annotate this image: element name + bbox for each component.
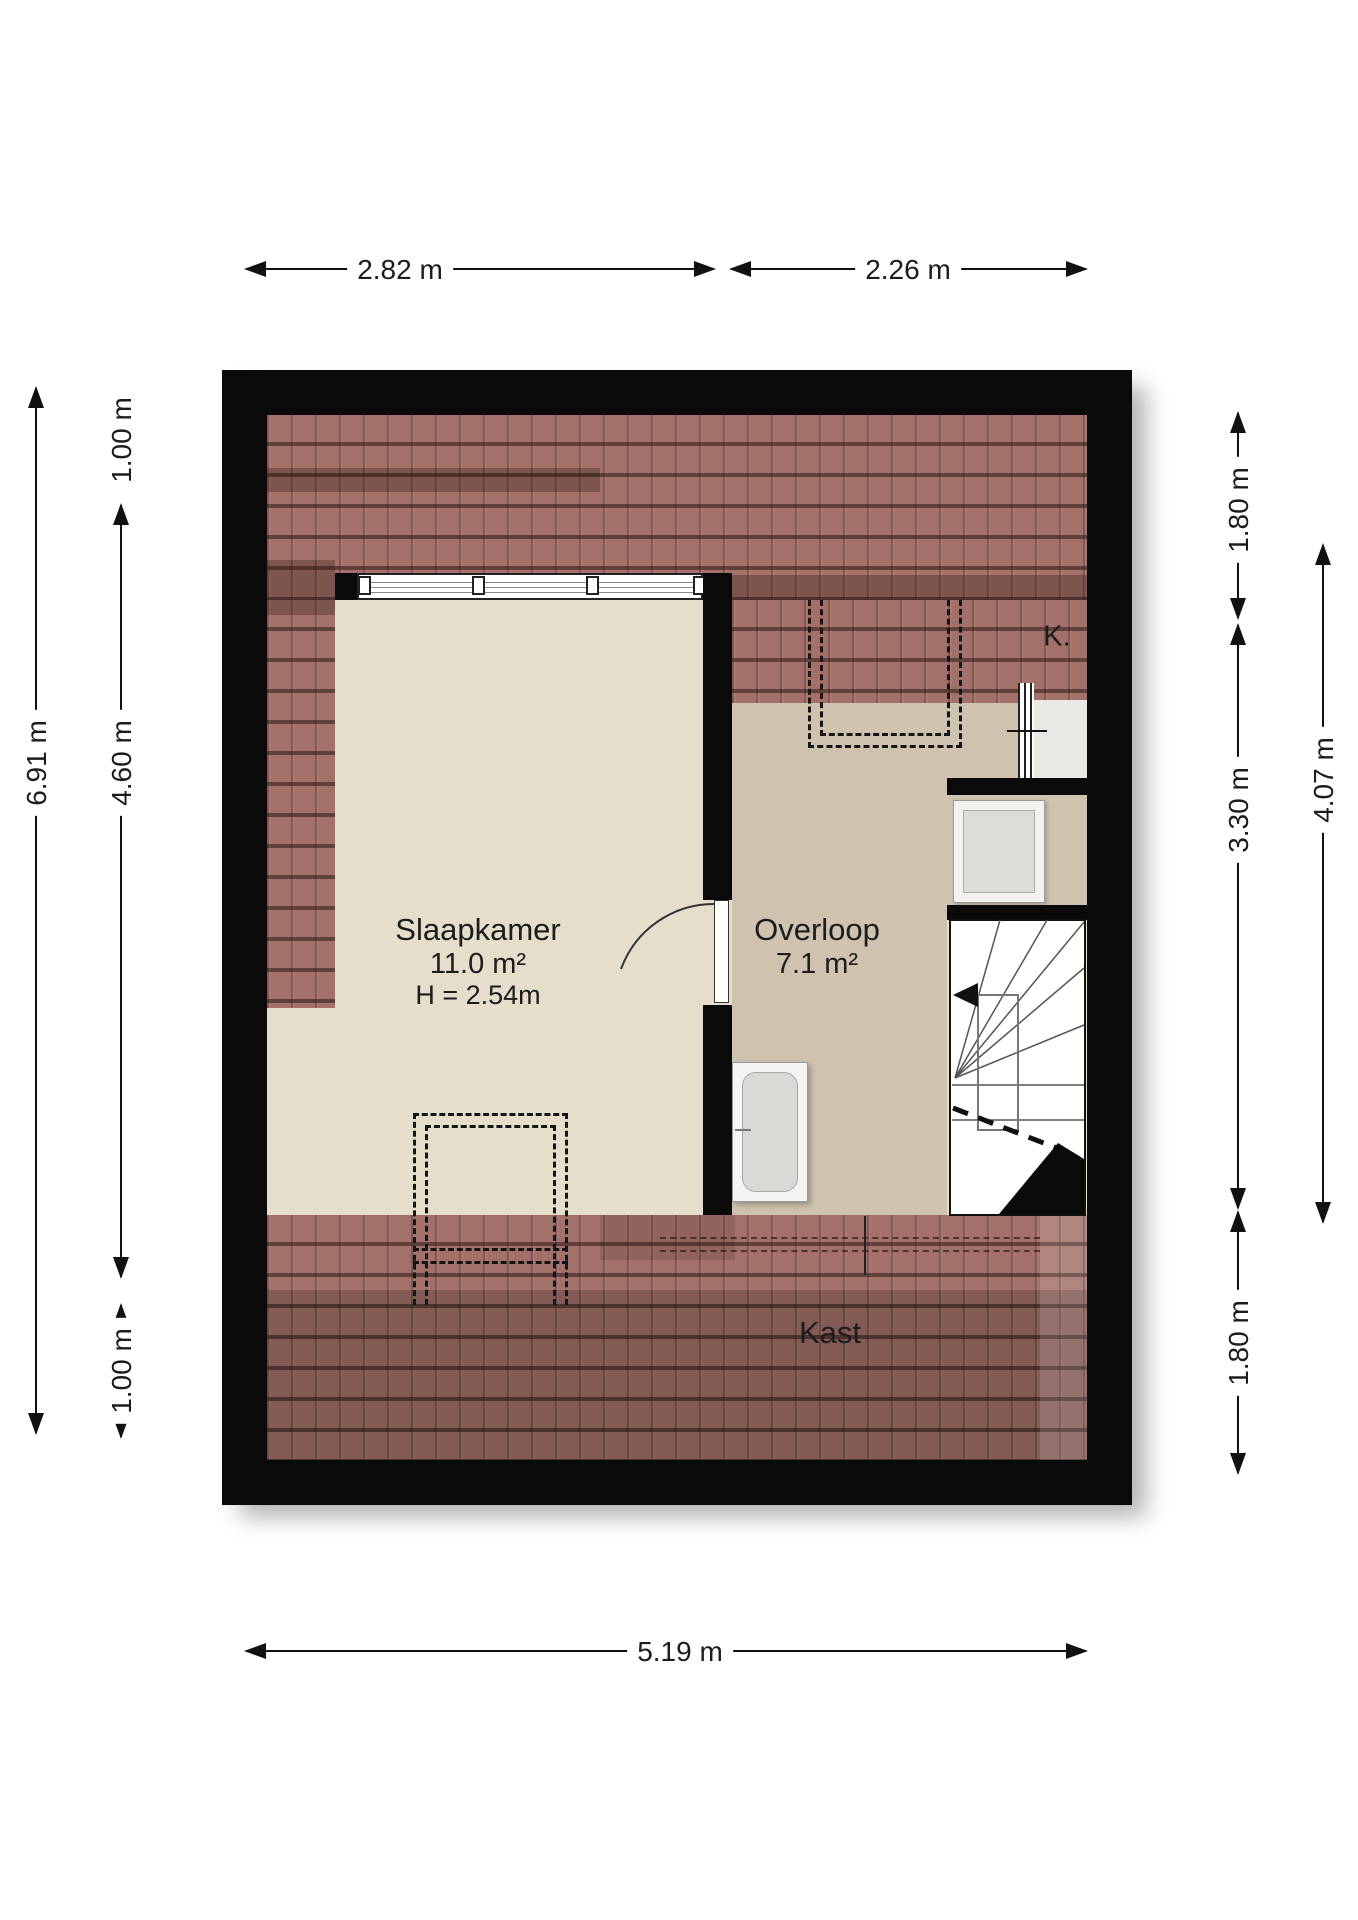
- building-interior: Slaapkamer 11.0 m² H = 2.54m Overloop 7.…: [267, 415, 1087, 1460]
- dim-label: 1.80 m: [1223, 1290, 1255, 1396]
- arrow-icon: [1315, 1202, 1331, 1224]
- floorplan-canvas: Slaapkamer 11.0 m² H = 2.54m Overloop 7.…: [0, 0, 1358, 1920]
- arrow-icon: [1230, 598, 1246, 620]
- arrow-icon: [1315, 543, 1331, 565]
- dim-label: 1.00 m: [106, 1318, 138, 1424]
- room-height: H = 2.54m: [395, 980, 560, 1010]
- dim-top-1: 2.82 m: [246, 268, 714, 270]
- dim-label: 3.30 m: [1223, 757, 1255, 863]
- dim-label: 5.19 m: [627, 1636, 733, 1668]
- arrow-icon: [1230, 1453, 1246, 1475]
- arrow-icon: [1066, 261, 1088, 277]
- dim-right-c: 1.80 m: [1237, 1212, 1239, 1473]
- kast-label: Kast: [799, 1315, 861, 1351]
- dim-left-a: 1.00 m: [120, 390, 122, 487]
- dim-label: 1.00 m: [106, 387, 138, 493]
- arrow-icon: [113, 1257, 129, 1279]
- dim-bottom: 5.19 m: [246, 1650, 1086, 1652]
- door-swing-arc: [621, 904, 714, 969]
- arrow-icon: [1230, 1210, 1246, 1232]
- arrow-icon: [28, 1413, 44, 1435]
- dim-top-2: 2.26 m: [731, 268, 1086, 270]
- dim-right-a: 1.80 m: [1237, 413, 1239, 618]
- room-area: 7.1 m²: [754, 948, 880, 980]
- dim-left-outer: 6.91 m: [35, 388, 37, 1433]
- dim-right-outer: 4.07 m: [1322, 545, 1324, 1222]
- building-outline: Slaapkamer 11.0 m² H = 2.54m Overloop 7.…: [222, 370, 1132, 1505]
- arrow-icon: [244, 261, 266, 277]
- room-area: 11.0 m²: [395, 948, 560, 980]
- k-label: K.: [1043, 621, 1070, 654]
- staircase: [267, 415, 1087, 1460]
- dim-label: 1.80 m: [1223, 457, 1255, 563]
- arrow-icon: [1230, 1188, 1246, 1210]
- room-name: Overloop: [754, 913, 880, 948]
- dim-label: 2.82 m: [347, 254, 453, 286]
- dim-left-b: 4.60 m: [120, 505, 122, 1277]
- arrow-icon: [729, 261, 751, 277]
- arrow-icon: [1230, 411, 1246, 433]
- arrow-icon: [244, 1643, 266, 1659]
- dim-left-c: 1.00 m: [120, 1305, 122, 1437]
- dim-right-b: 3.30 m: [1237, 625, 1239, 1208]
- dim-label: 4.60 m: [106, 710, 138, 816]
- overloop-label: Overloop 7.1 m²: [754, 913, 880, 980]
- dim-label: 2.26 m: [855, 254, 961, 286]
- arrow-icon: [28, 386, 44, 408]
- arrow-icon: [694, 261, 716, 277]
- dim-label: 4.07 m: [1308, 727, 1340, 833]
- slaapkamer-label: Slaapkamer 11.0 m² H = 2.54m: [395, 913, 560, 1010]
- dim-label: 6.91 m: [21, 710, 53, 816]
- arrow-icon: [1230, 623, 1246, 645]
- room-name: Slaapkamer: [395, 913, 560, 948]
- arrow-icon: [1066, 1643, 1088, 1659]
- arrow-icon: [113, 503, 129, 525]
